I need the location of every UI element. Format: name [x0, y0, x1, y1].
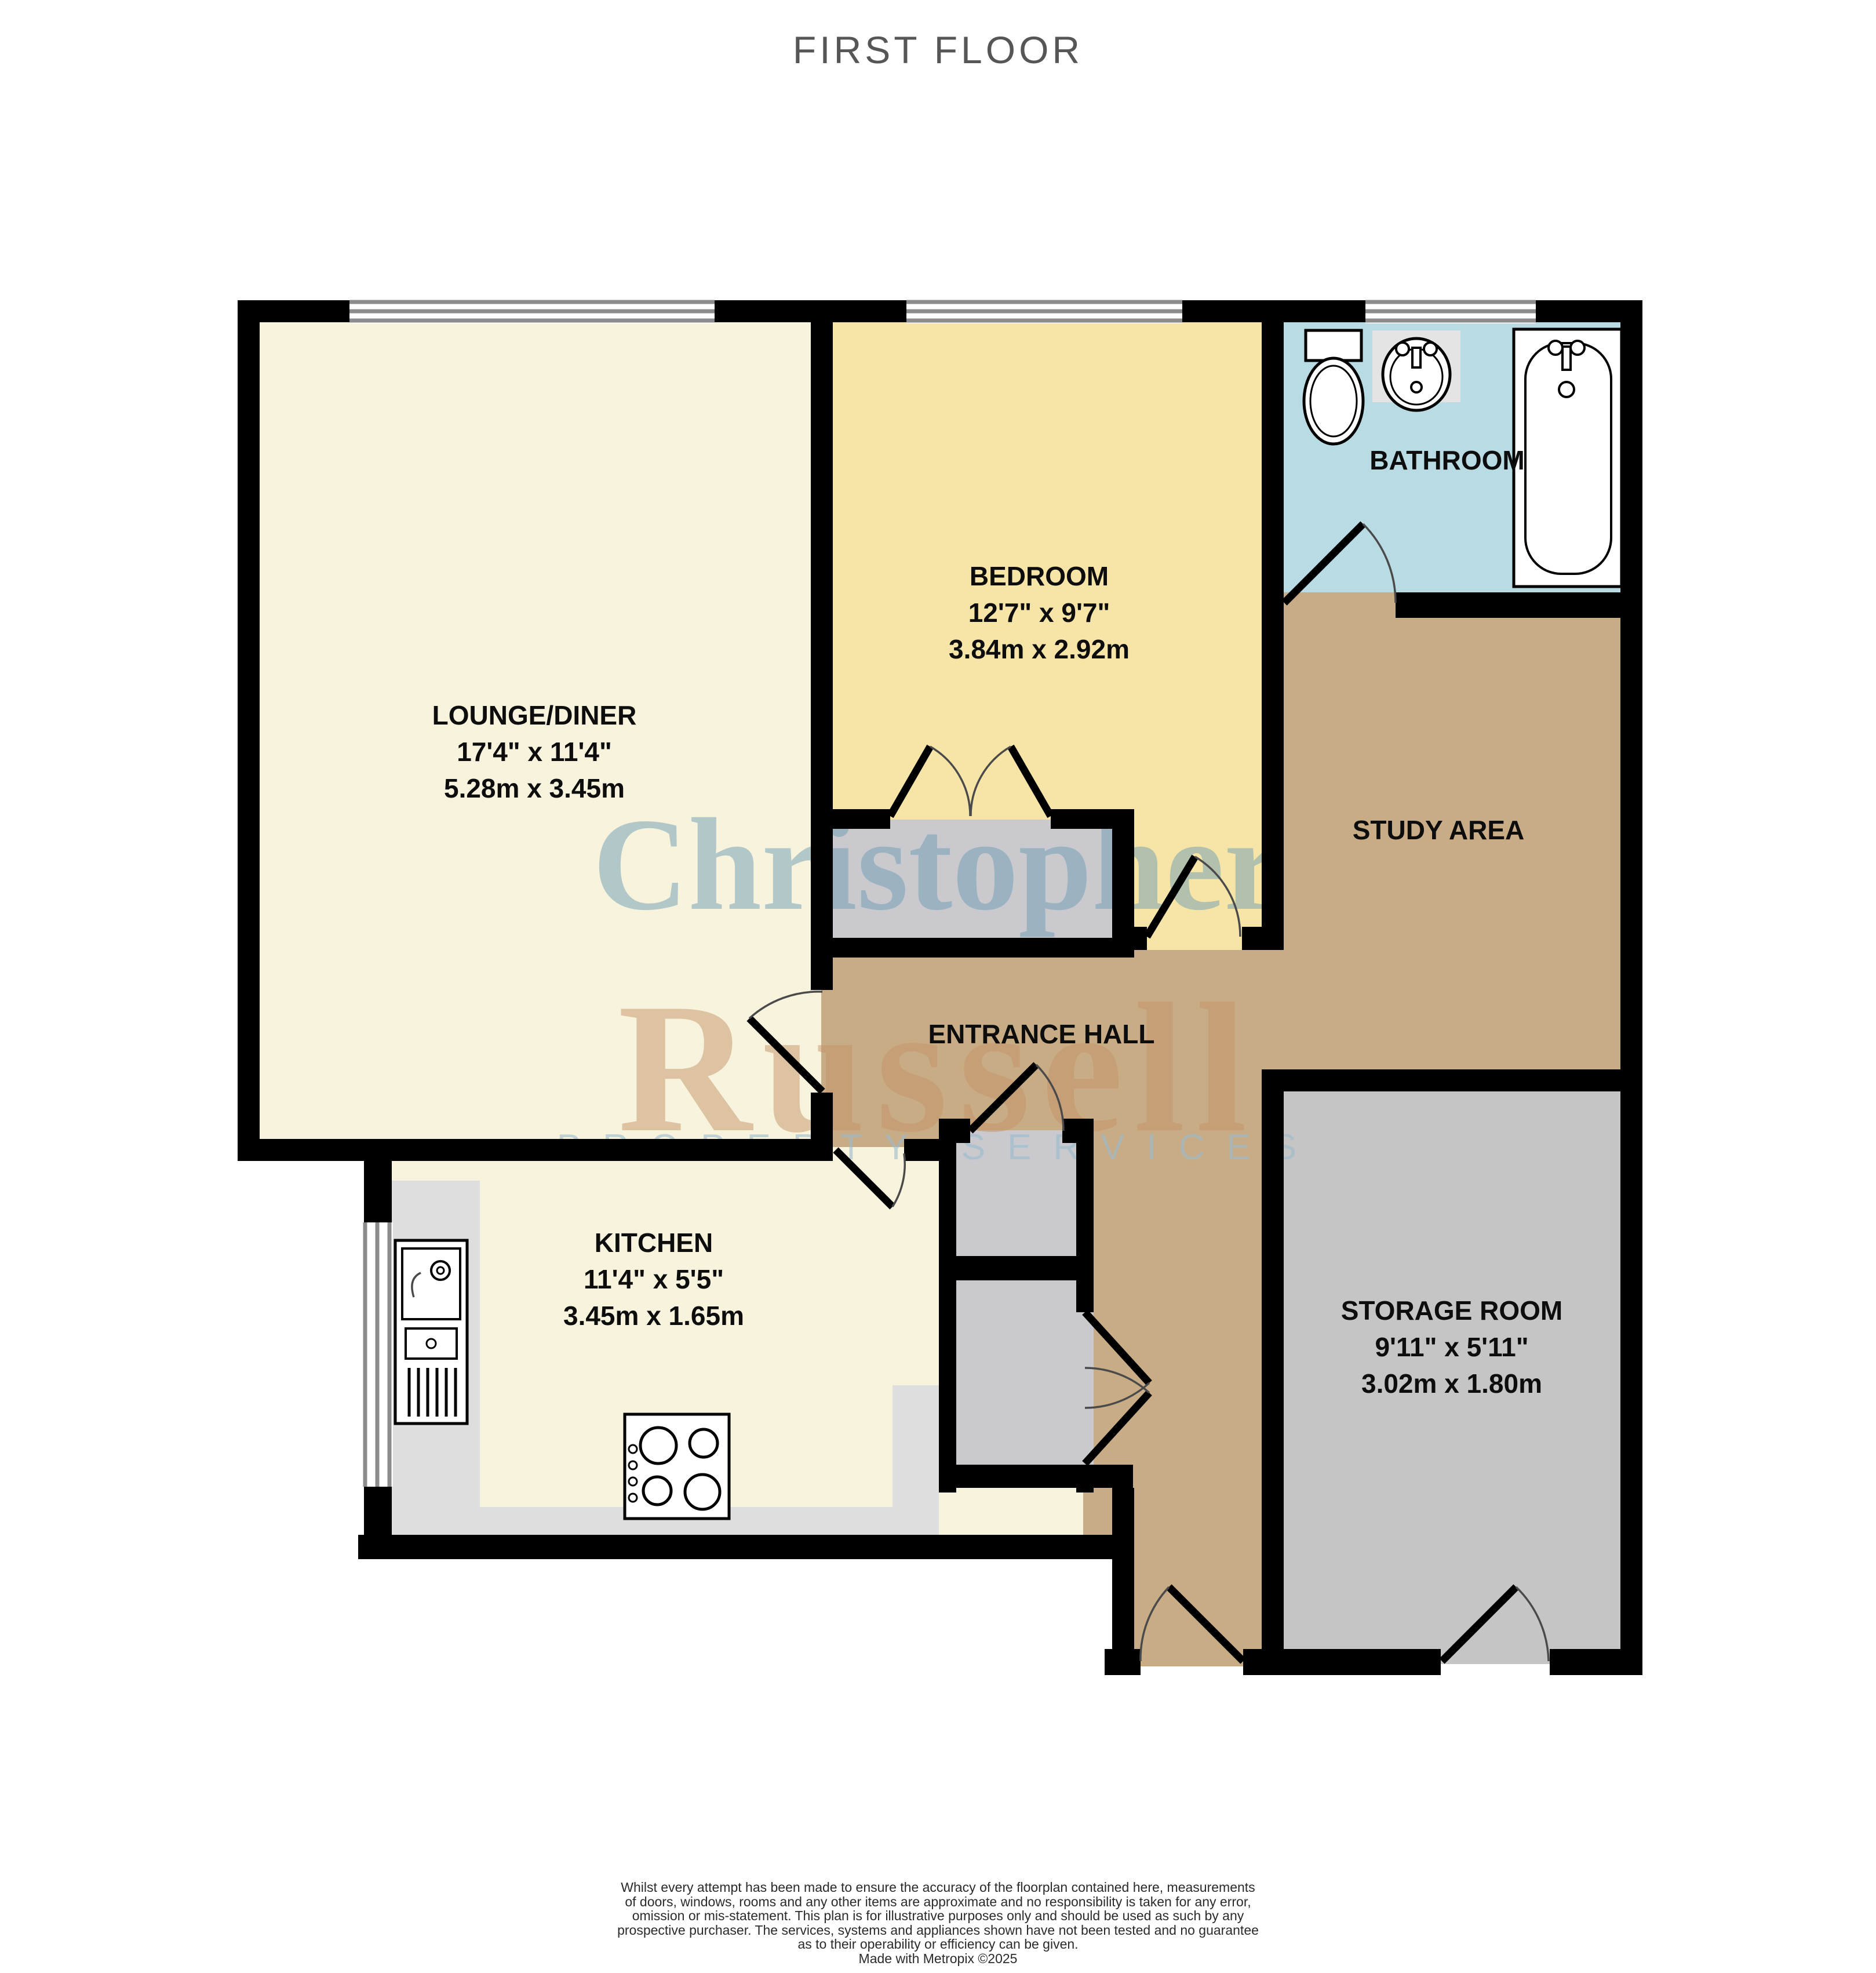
bathroom-window	[1365, 299, 1536, 323]
kitchen-counter-right	[893, 1385, 939, 1535]
wall-cupboard-bottom	[956, 1465, 1133, 1488]
wall-bathroom-bottom	[1396, 592, 1642, 618]
kitchen-window	[362, 1222, 393, 1487]
lounge-window	[349, 299, 715, 323]
wall-bottom-stub	[1105, 1649, 1141, 1675]
disclaimer: Whilst every attempt has been made to en…	[0, 1880, 1876, 1965]
wall-lounge-stub	[811, 1093, 833, 1161]
bedroom-dims-metric: 3.84m x 2.92m	[949, 634, 1130, 664]
wall-bedroom-bottom-a	[811, 809, 890, 829]
wall-hall-column-left	[1112, 1488, 1134, 1675]
floorplan-drawing: Christopher Russell PROPERTY SERVICES	[0, 0, 1876, 1973]
wall-cupboard-right-upper	[1076, 1119, 1094, 1312]
wall-storage-left	[1262, 1069, 1284, 1675]
disclaimer-line: as to their operability or efficiency ca…	[0, 1937, 1876, 1952]
bathroom-label: BATHROOM	[1369, 445, 1524, 475]
wall-kitchen-bottom	[358, 1535, 1133, 1559]
toilet-icon	[1304, 330, 1363, 444]
disclaimer-line: prospective purchaser. The services, sys…	[0, 1923, 1876, 1938]
bathroom-sink-icon	[1372, 330, 1460, 410]
storage-dims-metric: 3.02m x 1.80m	[1361, 1368, 1542, 1399]
wall-bedroom-bottom-b	[1051, 809, 1112, 829]
wall-bottom-mid	[1243, 1649, 1441, 1675]
wall-cupboard-top-a	[956, 1119, 970, 1143]
watermark-word1: Christopher	[593, 792, 1283, 938]
bedroom-window	[906, 299, 1182, 323]
metropix-credit: Made with Metropix ©2025	[0, 1952, 1876, 1966]
bathtub-icon	[1514, 329, 1622, 587]
disclaimer-line: of doors, windows, rooms and any other i…	[0, 1895, 1876, 1909]
kitchen-dims-metric: 3.45m x 1.65m	[563, 1301, 744, 1331]
wall-lobby-bottom	[811, 938, 1134, 958]
wall-left	[238, 300, 260, 1161]
lounge-dims-imperial: 17'4" x 11'4"	[457, 737, 612, 767]
wall-bedroom-bathroom	[1262, 300, 1284, 950]
wall-storage-top	[1283, 1069, 1642, 1091]
cupboards-floor	[948, 1130, 1094, 1487]
bedroom-label: BEDROOM	[970, 561, 1109, 591]
stove-icon	[625, 1414, 729, 1519]
bedroom-dims-imperial: 12'7" x 9'7"	[968, 598, 1110, 628]
wall-right	[1620, 300, 1642, 1675]
wall-cupboard-mid	[956, 1256, 1076, 1280]
floorplan-page: FIRST FLOOR Christopher Russell	[0, 0, 1876, 1973]
storage-label: STORAGE ROOM	[1341, 1295, 1563, 1326]
disclaimer-line: Whilst every attempt has been made to en…	[0, 1880, 1876, 1895]
kitchen-label: KITCHEN	[595, 1228, 713, 1258]
storage-dims-imperial: 9'11" x 5'11"	[1375, 1332, 1528, 1362]
wall-bottom-right	[1550, 1649, 1642, 1675]
lounge-label: LOUNGE/DINER	[432, 700, 637, 730]
kitchen-dims-imperial: 11'4" x 5'5"	[584, 1264, 724, 1294]
wall-lounge-bedroom	[811, 300, 833, 990]
agency-watermark: Christopher Russell PROPERTY SERVICES	[557, 792, 1318, 1171]
disclaimer-line: omission or mis-statement. This plan is …	[0, 1909, 1876, 1923]
wall-lounge-bottom	[238, 1139, 833, 1161]
hall-label: ENTRANCE HALL	[928, 1019, 1155, 1049]
bathroom-door-threshold	[1283, 592, 1397, 618]
kitchen-sink-icon	[395, 1240, 467, 1424]
wall-cupboard-left	[939, 1119, 956, 1493]
wall-alcove-bottom-a	[1134, 927, 1147, 950]
study-label: STUDY AREA	[1353, 815, 1524, 845]
lounge-dims-metric: 5.28m x 3.45m	[444, 773, 625, 803]
wall-lobby-right	[1112, 809, 1134, 958]
